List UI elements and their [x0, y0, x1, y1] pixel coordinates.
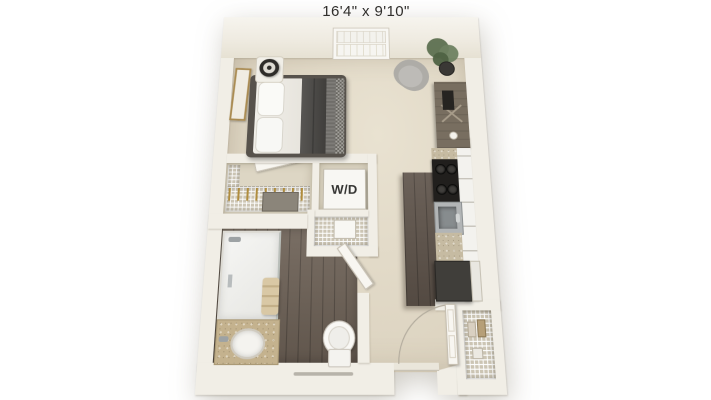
refrigerator [434, 261, 474, 302]
potted-plant [426, 38, 462, 76]
plant-pot [438, 61, 455, 75]
toilet-seat [328, 326, 350, 350]
shower-head [228, 237, 241, 242]
pantry-bottle-1 [467, 322, 477, 338]
vanity [214, 319, 281, 365]
toilet-tank [328, 349, 351, 368]
kitchen-counter-north [431, 148, 457, 159]
closet-dresser [262, 192, 299, 212]
bed-pillow-2 [255, 117, 284, 153]
bed-pillow-1 [257, 82, 285, 116]
wall-laundry-linen-divider [314, 210, 368, 217]
desk [434, 82, 471, 148]
washer-dryer: W/D [323, 169, 367, 210]
kitchen-faucet [456, 214, 461, 223]
stove-burner-2 [446, 164, 457, 174]
desk-mug [449, 131, 458, 139]
window-sash-lower [336, 44, 386, 56]
wall-south [195, 363, 395, 395]
entry-door-panel-1 [447, 309, 455, 331]
pantry-bottle-2 [477, 319, 487, 337]
window [332, 28, 390, 60]
stove-burner-1 [435, 164, 446, 174]
wall-bath-north [208, 214, 308, 229]
wall-closet-divider [311, 163, 319, 214]
linen-storage-box [334, 220, 357, 239]
toilet [322, 320, 353, 366]
bed [246, 75, 347, 157]
shower-valve [227, 275, 232, 288]
desk-laptop [442, 90, 455, 109]
towel-bar [294, 372, 354, 376]
kitchen-sink-basin [438, 207, 457, 229]
floorplan-wrapper: W/D [0, 0, 711, 400]
wall-laundry-east [368, 154, 378, 257]
bed-blanket [300, 78, 327, 153]
bed-checkered-throw [335, 78, 344, 153]
wall-bath-east [357, 293, 369, 363]
entry-door-panel-2 [448, 335, 456, 358]
wall-pantry-south [457, 379, 507, 395]
pantry-jar [472, 348, 484, 360]
window-sash-upper [336, 31, 386, 43]
vanity-faucet [218, 336, 228, 342]
vanity-sink [229, 328, 265, 359]
floorplan-screenshot: 16'4" x 9'10" W/D [0, 0, 711, 400]
bed-knit-runner [325, 78, 335, 153]
towel-stack [261, 278, 280, 315]
floorplan: W/D [195, 17, 507, 395]
stove-burner-3 [436, 184, 448, 195]
kitchen-sink [434, 202, 464, 235]
kitchen-counter-south [435, 233, 463, 261]
washer-dryer-label: W/D [324, 170, 366, 209]
stove-burner-4 [447, 184, 459, 195]
stove [432, 159, 460, 201]
